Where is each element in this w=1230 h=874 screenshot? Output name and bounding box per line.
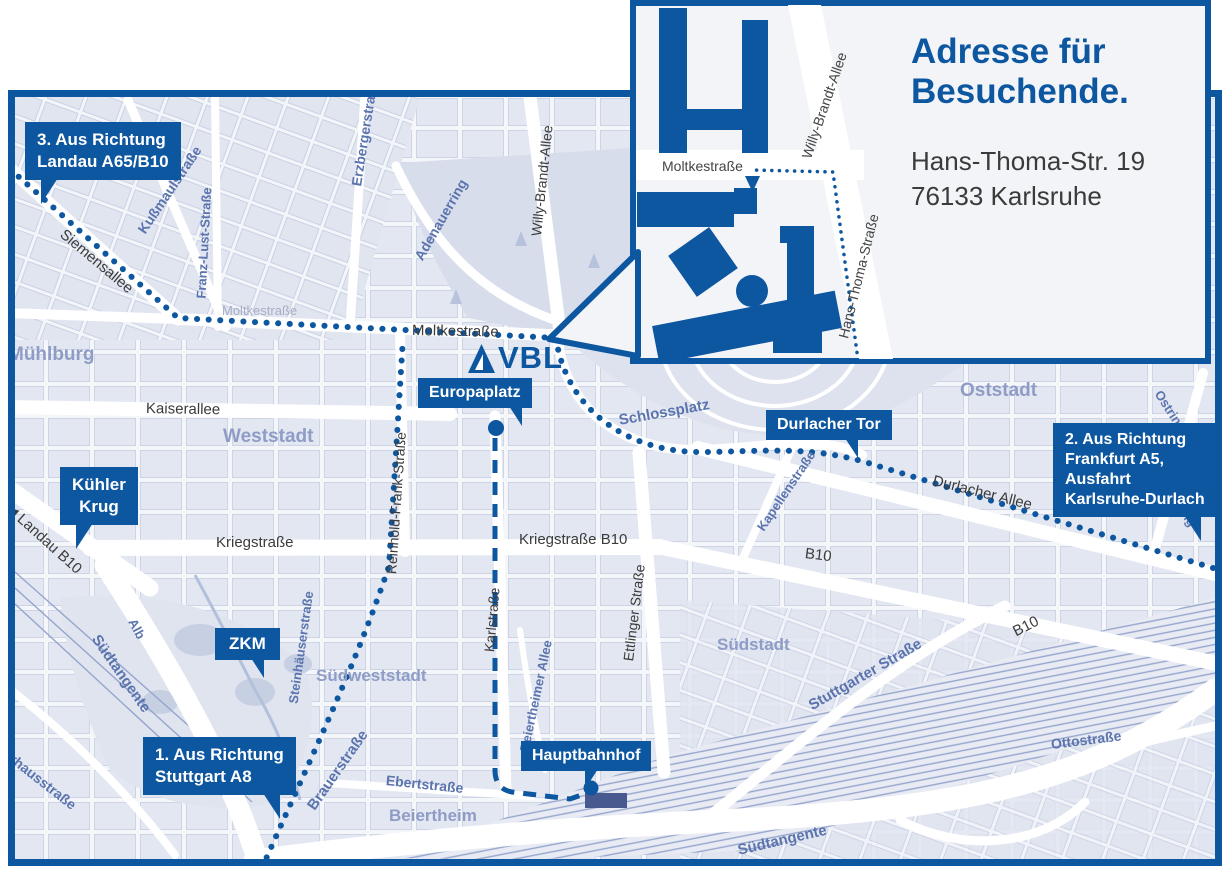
- street-kapellenstrasse: Kapellenstraße: [754, 448, 819, 534]
- street-schlossplatz: Schlossplatz: [618, 396, 711, 429]
- street-moltkestrasse-faint: Moltkestraße: [222, 303, 297, 318]
- inset-title: Adresse für Besuchende.: [911, 32, 1129, 113]
- district-oststadt: Oststadt: [960, 380, 1037, 402]
- street-karlstrasse: Karlstraße: [481, 587, 503, 653]
- street-kaiserallee: Kaiserallee: [146, 400, 221, 418]
- street-franz-lust-strasse: Franz-Lust-Straße: [194, 187, 215, 299]
- badge-kuehler-krug: Kühler Krug: [60, 467, 138, 525]
- street-ebertstrasse: Ebertstraße: [385, 772, 464, 796]
- street-willy-brandt-allee: Willy-Brandt-Allee: [528, 125, 556, 237]
- inset-address: Hans-Thoma-Str. 19 76133 Karlsruhe: [911, 144, 1145, 214]
- street-suedtangente-west: Südtangente: [88, 632, 154, 716]
- vbl-logo: VBL: [468, 342, 563, 373]
- street-siemensallee: Siemensallee: [57, 226, 137, 297]
- street-suedtangente-east: Südtangente: [736, 822, 828, 859]
- street-steinhaeuserstrasse: Steinhäuserstraße: [286, 590, 317, 704]
- street-brauerstrasse: Brauerstraße: [304, 727, 371, 813]
- badge-route-3-landau: 3. Aus Richtung Landau A65/B10: [25, 122, 181, 180]
- district-suedweststadt: Südweststadt: [316, 666, 427, 686]
- badge-hauptbahnhof: Hauptbahnhof: [521, 741, 651, 771]
- street-ottostrasse: Ottostraße: [1050, 727, 1122, 752]
- district-weststadt: Weststadt: [223, 426, 313, 448]
- street-alb: Alb: [125, 616, 148, 642]
- visitor-address-inset: Adresse für Besuchende. Hans-Thoma-Str. …: [630, 0, 1211, 364]
- street-durlacher-allee: Durlacher Allee: [931, 472, 1034, 513]
- street-kriegstrasse: Kriegstraße: [216, 534, 294, 551]
- badge-pointer: [263, 793, 280, 819]
- vbl-triangle-icon: [468, 344, 495, 373]
- badge-pointer: [1184, 515, 1201, 541]
- district-beiertheim: Beiertheim: [389, 806, 477, 826]
- vbl-logo-text: VBL: [498, 342, 563, 373]
- badge-pointer: [251, 658, 264, 678]
- street-beiertheimer-allee: Beiertheimer Allee: [517, 639, 555, 753]
- street-stuttgarter-strasse: Stuttgarter Straße: [806, 635, 925, 713]
- badge-europaplatz: Europaplatz: [418, 378, 532, 408]
- street-b10-mid: B10: [804, 545, 833, 565]
- badge-zkm: ZKM: [215, 628, 280, 660]
- badge-pointer: [41, 178, 58, 204]
- vbl-visitor-map-page: { "colors":{"accent":"#0d56a0","street_b…: [0, 0, 1230, 874]
- badge-route-1-stuttgart: 1. Aus Richtung Stuttgart A8: [143, 737, 296, 795]
- district-muehlburg: Mühlburg: [8, 344, 95, 366]
- street-pulverhausstrasse: Pulverhausstraße: [0, 728, 80, 813]
- badge-pointer: [585, 769, 598, 789]
- street-kriegstrasse-b10: Kriegstraße B10: [519, 531, 627, 548]
- street-moltkestrasse: Moltkestraße: [412, 322, 499, 341]
- street-ettlinger-strasse: Ettlinger Straße: [620, 563, 648, 661]
- street-erzbergerstrasse: Erzbergerstraße: [348, 79, 381, 188]
- badge-pointer: [845, 438, 858, 458]
- district-suedstadt: Südstadt: [717, 635, 790, 655]
- street-reinhold-frank-strasse: Reinhold-Frank-Straße: [383, 431, 409, 574]
- badge-durlacher-tor: Durlacher Tor: [766, 410, 892, 440]
- street-b10-east: B10: [1010, 613, 1042, 640]
- badge-pointer: [76, 523, 93, 549]
- badge-pointer: [509, 406, 522, 426]
- badge-route-2-frankfurt: 2. Aus Richtung Frankfurt A5, Ausfahrt K…: [1053, 423, 1217, 517]
- street-adenauerring: Adenauerring: [411, 176, 470, 263]
